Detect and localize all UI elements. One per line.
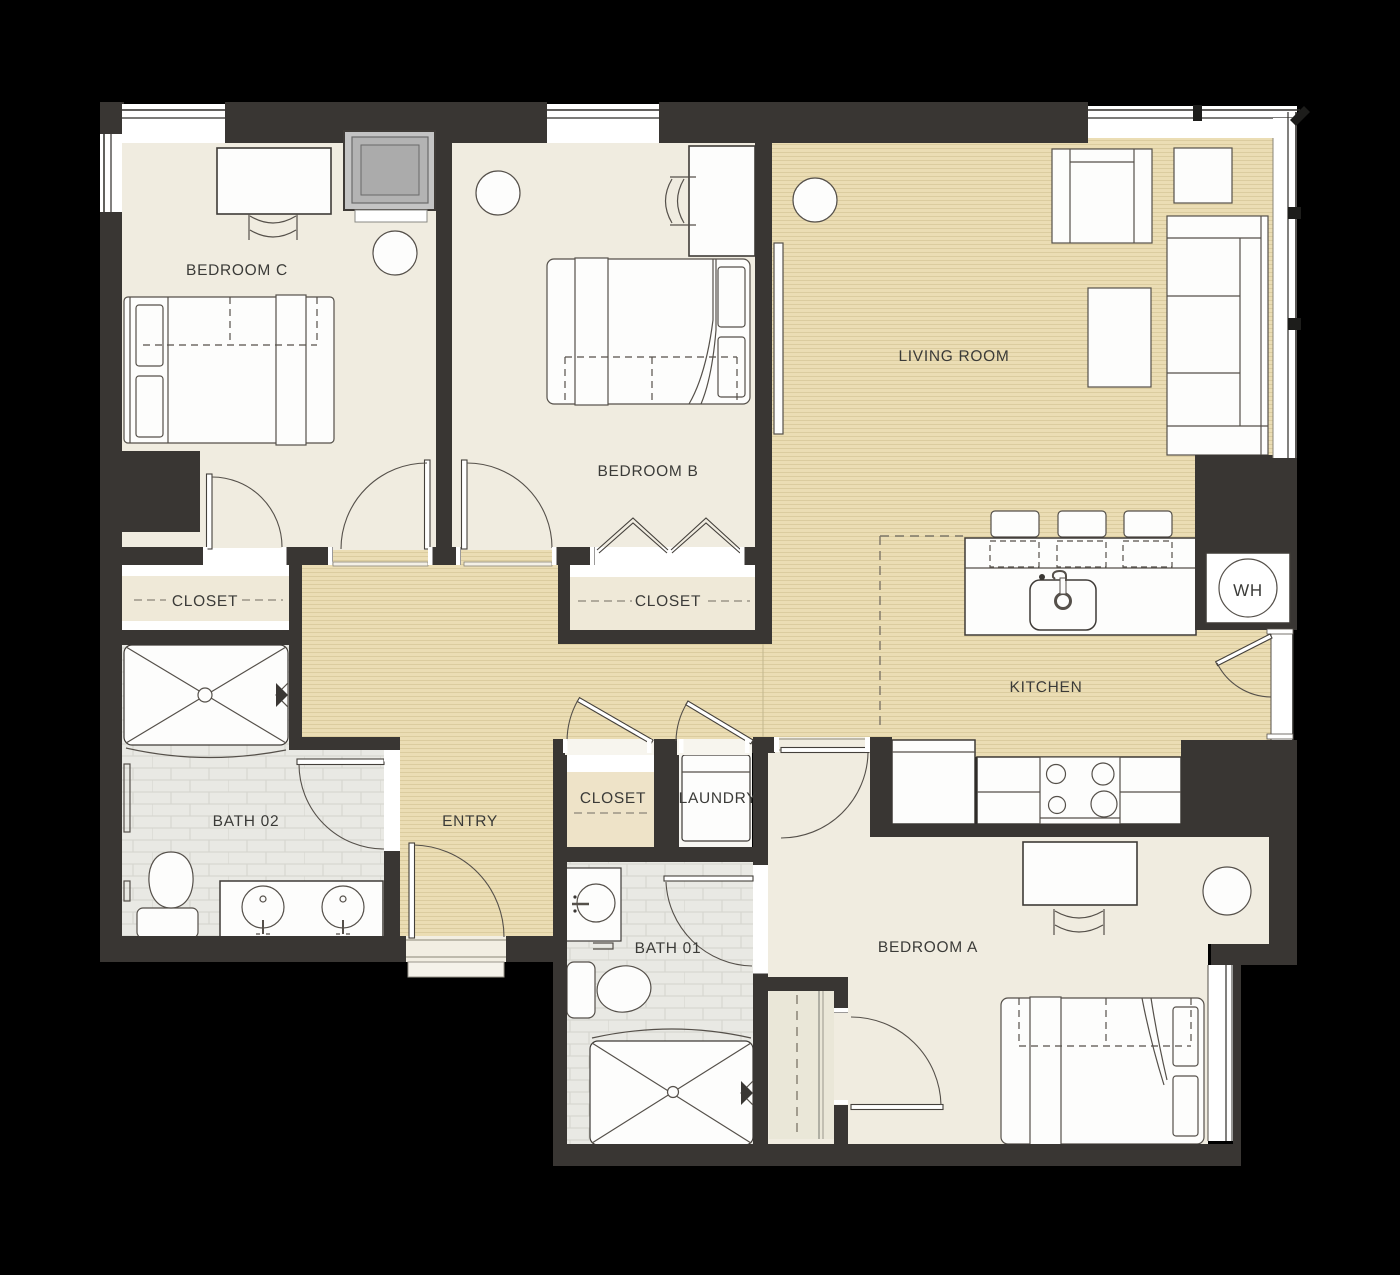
svg-text:WH: WH xyxy=(1233,581,1263,600)
svg-text:CLOSET: CLOSET xyxy=(580,790,646,807)
svg-text:CLOSET: CLOSET xyxy=(635,593,701,610)
svg-text:BATH 01: BATH 01 xyxy=(635,940,702,957)
svg-text:BEDROOM A: BEDROOM A xyxy=(878,939,978,956)
svg-text:BEDROOM B: BEDROOM B xyxy=(597,463,698,480)
svg-text:LAUNDRY: LAUNDRY xyxy=(679,790,758,807)
svg-text:BATH 02: BATH 02 xyxy=(213,813,280,830)
svg-text:KITCHEN: KITCHEN xyxy=(1010,679,1083,696)
svg-text:LIVING ROOM: LIVING ROOM xyxy=(898,348,1009,365)
svg-text:CLOSET: CLOSET xyxy=(172,593,238,610)
svg-text:BEDROOM C: BEDROOM C xyxy=(186,262,288,279)
svg-text:ENTRY: ENTRY xyxy=(442,813,498,830)
